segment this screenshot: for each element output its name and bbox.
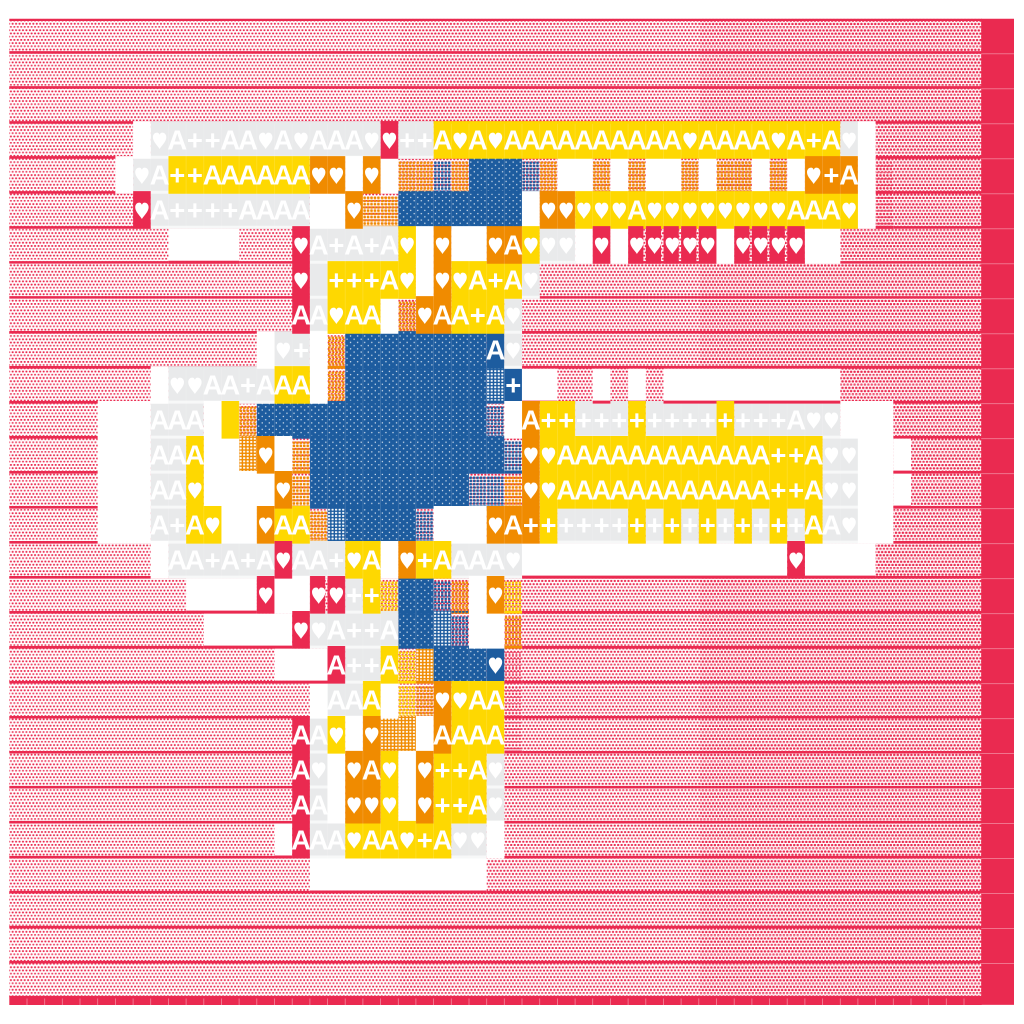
svg-text:A: A (822, 195, 842, 226)
svg-text:+: + (452, 754, 468, 785)
svg-text:A: A (751, 439, 771, 470)
svg-text:A: A (344, 230, 364, 261)
svg-text:+: + (541, 509, 557, 540)
svg-text:+: + (452, 789, 468, 820)
svg-text:+: + (346, 614, 362, 645)
svg-text:A: A (450, 300, 470, 331)
svg-text:+: + (417, 125, 433, 156)
svg-text:+: + (435, 789, 451, 820)
svg-text:A: A (486, 684, 506, 715)
svg-text:A: A (309, 789, 329, 820)
svg-text:A: A (273, 125, 293, 156)
svg-text:A: A (291, 370, 311, 401)
svg-text:+: + (187, 160, 203, 191)
svg-text:+: + (594, 404, 610, 435)
svg-text:A: A (327, 614, 347, 645)
svg-text:A: A (503, 509, 523, 540)
svg-text:A: A (185, 404, 205, 435)
svg-text:A: A (291, 754, 311, 785)
svg-text:A: A (786, 404, 806, 435)
svg-text:+: + (187, 125, 203, 156)
svg-text:+: + (806, 125, 822, 156)
svg-text:A: A (362, 754, 382, 785)
svg-text:+: + (169, 195, 185, 226)
svg-text:A: A (804, 439, 824, 470)
svg-text:A: A (662, 125, 682, 156)
svg-text:+: + (788, 474, 804, 505)
svg-text:+: + (576, 509, 592, 540)
svg-text:+: + (187, 195, 203, 226)
svg-text:+: + (647, 509, 663, 540)
svg-text:+: + (770, 439, 786, 470)
svg-text:+: + (435, 754, 451, 785)
svg-text:A: A (291, 509, 311, 540)
svg-text:A: A (380, 649, 400, 680)
svg-text:A: A (486, 719, 506, 750)
svg-text:+: + (700, 404, 716, 435)
svg-text:+: + (629, 404, 645, 435)
svg-text:A: A (468, 789, 488, 820)
svg-text:A: A (256, 544, 276, 575)
svg-text:A: A (822, 509, 842, 540)
svg-text:A: A (220, 544, 240, 575)
svg-text:+: + (788, 509, 804, 540)
svg-text:+: + (328, 230, 344, 261)
svg-text:+: + (346, 265, 362, 296)
svg-text:+: + (576, 404, 592, 435)
svg-text:+: + (647, 404, 663, 435)
svg-text:+: + (328, 544, 344, 575)
svg-text:+: + (417, 824, 433, 855)
svg-text:+: + (611, 404, 627, 435)
svg-text:+: + (470, 300, 486, 331)
svg-text:A: A (433, 824, 453, 855)
svg-text:A: A (486, 300, 506, 331)
svg-text:A: A (468, 265, 488, 296)
svg-text:+: + (717, 509, 733, 540)
svg-text:+: + (770, 509, 786, 540)
svg-text:A: A (468, 125, 488, 156)
svg-text:A: A (150, 509, 170, 540)
svg-text:A: A (380, 265, 400, 296)
svg-text:+: + (364, 579, 380, 610)
svg-text:+: + (328, 265, 344, 296)
svg-text:+: + (611, 509, 627, 540)
svg-text:A: A (362, 684, 382, 715)
svg-text:+: + (629, 509, 645, 540)
svg-text:A: A (167, 474, 187, 505)
svg-text:+: + (753, 404, 769, 435)
svg-text:+: + (364, 265, 380, 296)
svg-text:+: + (364, 230, 380, 261)
svg-text:+: + (788, 439, 804, 470)
svg-text:A: A (150, 160, 170, 191)
svg-text:+: + (770, 474, 786, 505)
svg-text:A: A (185, 544, 205, 575)
svg-text:+: + (417, 544, 433, 575)
svg-text:A: A (309, 719, 329, 750)
svg-text:+: + (488, 265, 504, 296)
svg-text:A: A (238, 125, 258, 156)
svg-text:A: A (380, 824, 400, 855)
svg-text:A: A (344, 125, 364, 156)
svg-text:A: A (309, 230, 329, 261)
svg-text:+: + (293, 335, 309, 366)
svg-text:A: A (521, 404, 541, 435)
svg-text:A: A (786, 125, 806, 156)
svg-text:A: A (327, 649, 347, 680)
svg-text:A: A (380, 614, 400, 645)
svg-text:+: + (169, 509, 185, 540)
svg-text:+: + (364, 614, 380, 645)
svg-text:+: + (753, 509, 769, 540)
svg-text:A: A (822, 125, 842, 156)
svg-text:+: + (364, 649, 380, 680)
svg-text:A: A (468, 754, 488, 785)
svg-text:A: A (503, 230, 523, 261)
svg-text:+: + (240, 544, 256, 575)
svg-text:+: + (205, 195, 221, 226)
svg-text:A: A (380, 230, 400, 261)
svg-text:A: A (185, 439, 205, 470)
svg-text:+: + (169, 160, 185, 191)
svg-text:A: A (627, 195, 647, 226)
svg-text:A: A (150, 195, 170, 226)
svg-text:A: A (362, 544, 382, 575)
svg-text:+: + (682, 509, 698, 540)
svg-text:+: + (558, 404, 574, 435)
svg-text:+: + (594, 509, 610, 540)
svg-text:A: A (433, 125, 453, 156)
svg-text:A: A (291, 195, 311, 226)
svg-text:+: + (346, 649, 362, 680)
svg-text:+: + (346, 579, 362, 610)
svg-text:+: + (664, 509, 680, 540)
svg-text:A: A (309, 544, 329, 575)
svg-text:A: A (839, 160, 859, 191)
svg-text:+: + (541, 404, 557, 435)
svg-text:+: + (205, 125, 221, 156)
svg-text:A: A (751, 125, 771, 156)
svg-text:A: A (291, 160, 311, 191)
svg-text:A: A (167, 125, 187, 156)
svg-text:+: + (205, 544, 221, 575)
svg-text:+: + (735, 404, 751, 435)
svg-text:A: A (486, 335, 506, 366)
svg-text:+: + (222, 195, 238, 226)
svg-text:A: A (804, 474, 824, 505)
svg-text:A: A (327, 824, 347, 855)
svg-text:A: A (309, 300, 329, 331)
svg-text:+: + (664, 404, 680, 435)
svg-text:+: + (682, 404, 698, 435)
svg-text:A: A (362, 300, 382, 331)
svg-text:+: + (240, 370, 256, 401)
svg-text:+: + (717, 404, 733, 435)
svg-text:+: + (735, 509, 751, 540)
svg-text:+: + (823, 160, 839, 191)
svg-text:+: + (770, 404, 786, 435)
svg-text:+: + (558, 509, 574, 540)
svg-text:+: + (523, 509, 539, 540)
svg-text:A: A (220, 370, 240, 401)
svg-text:A: A (486, 544, 506, 575)
svg-text:A: A (751, 474, 771, 505)
svg-text:+: + (505, 370, 521, 401)
svg-text:A: A (503, 265, 523, 296)
svg-text:A: A (185, 509, 205, 540)
svg-text:+: + (700, 509, 716, 540)
svg-text:+: + (399, 125, 415, 156)
